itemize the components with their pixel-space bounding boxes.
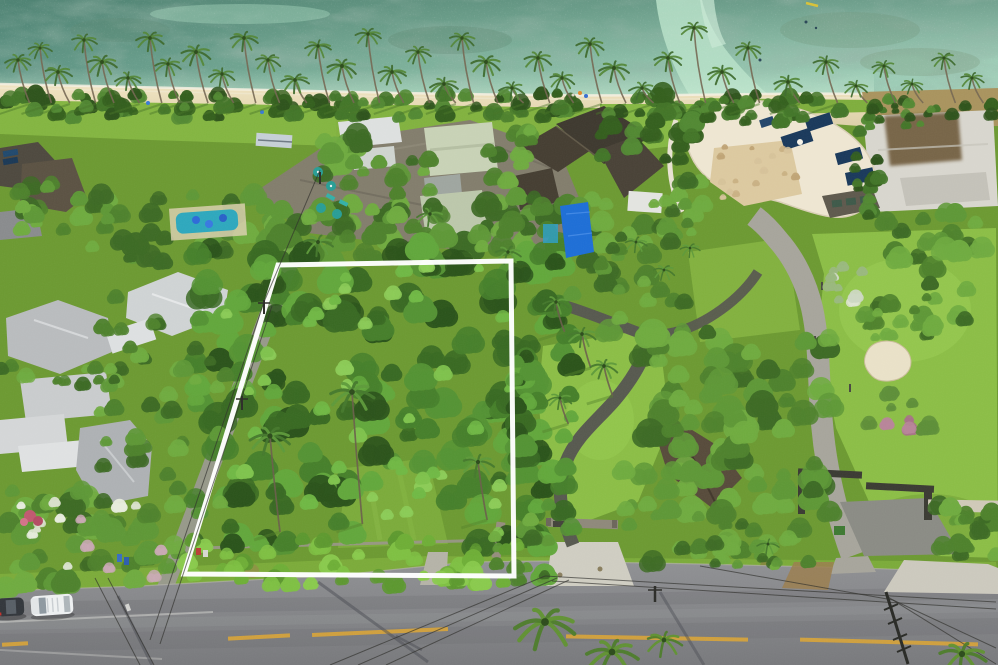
- dark-car: [0, 597, 27, 621]
- aerial-photo-stage: [0, 0, 998, 665]
- white-suv: [29, 593, 75, 621]
- aerial-photo: [0, 0, 998, 665]
